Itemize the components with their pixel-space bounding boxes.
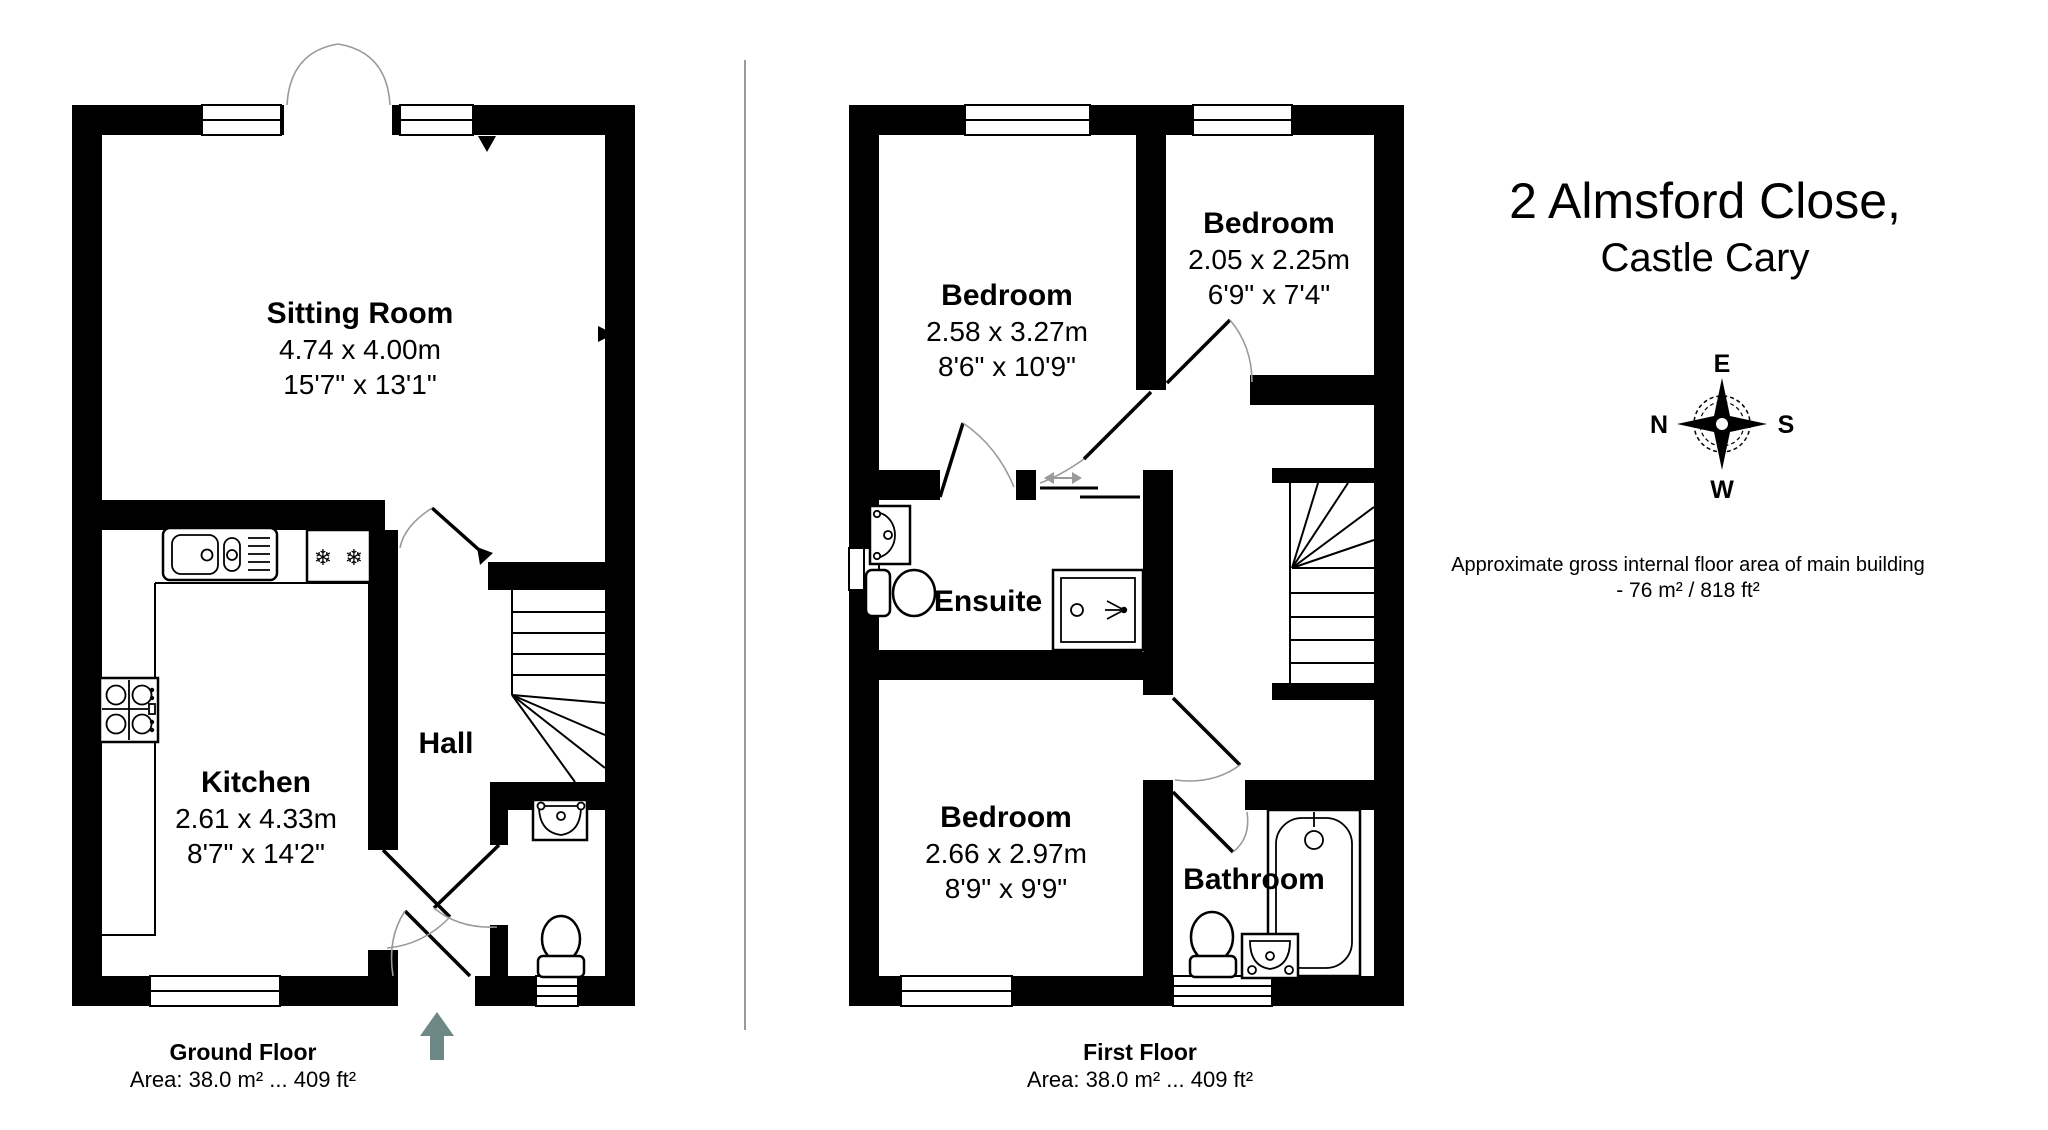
kitchen-counter <box>102 583 368 935</box>
room-dim-metric: 2.58 x 3.27m <box>926 314 1088 349</box>
hob-icon <box>100 678 158 742</box>
svg-text:❄: ❄ <box>345 546 363 571</box>
floor-footer-title: First Floor <box>1027 1038 1253 1066</box>
window <box>150 976 280 1006</box>
window <box>901 976 1012 1006</box>
room-label-bedroom-3: Bedroom 2.66 x 2.97m 8'9" x 9'9" <box>925 800 1087 906</box>
room-name: Bedroom <box>1188 206 1350 242</box>
floor-footer-area: Area: 38.0 m² ... 409 ft² <box>1027 1066 1253 1094</box>
window <box>1193 105 1292 135</box>
window <box>1173 976 1272 1006</box>
ensuite-basin-icon <box>870 506 910 564</box>
shower-icon <box>1053 570 1143 650</box>
floorplan-page: ❄ ❄ <box>0 0 2048 1130</box>
door-swing <box>434 845 499 927</box>
room-dim-imperial: 6'9" x 7'4" <box>1188 277 1350 312</box>
room-dim-metric: 2.05 x 2.25m <box>1188 242 1350 277</box>
room-label-bedroom-1: Bedroom 2.58 x 3.27m 8'6" x 10'9" <box>926 278 1088 384</box>
compass-top-label: E <box>1714 350 1731 378</box>
room-name: Bathroom <box>1183 862 1325 898</box>
room-label-bedroom-2: Bedroom 2.05 x 2.25m 6'9" x 7'4" <box>1188 206 1350 312</box>
room-name: Kitchen <box>175 765 337 801</box>
room-name: Bedroom <box>925 800 1087 836</box>
door-swing <box>383 850 450 948</box>
stairs <box>1290 483 1374 683</box>
kitchen-sink-icon <box>163 528 277 580</box>
floor-footer-title: Ground Floor <box>130 1038 356 1066</box>
ensuite-toilet-icon <box>866 570 935 616</box>
room-dim-imperial: 8'6" x 10'9" <box>926 349 1088 384</box>
wc-basin-icon <box>533 800 587 840</box>
page-title-line1: 2 Almsford Close, <box>1509 170 1901 232</box>
gross-area-note-line2: - 76 m² / 818 ft² <box>1451 578 1925 604</box>
window <box>202 105 281 135</box>
gross-area-note: Approximate gross internal floor area of… <box>1451 552 1925 604</box>
room-dim-imperial: 15'7" x 13'1" <box>267 367 454 402</box>
room-name: Bedroom <box>926 278 1088 314</box>
room-label-hall: Hall <box>418 726 473 762</box>
room-label-sitting-room: Sitting Room 4.74 x 4.00m 15'7" x 13'1" <box>267 296 454 402</box>
floor-footer-area: Area: 38.0 m² ... 409 ft² <box>130 1066 356 1094</box>
room-dim-metric: 2.66 x 2.97m <box>925 836 1087 871</box>
bathroom-basin-icon <box>1242 934 1298 978</box>
front-double-door <box>284 44 392 135</box>
room-dim-imperial: 8'9" x 9'9" <box>925 871 1087 906</box>
stairs <box>512 590 605 782</box>
page-title-line2: Castle Cary <box>1509 232 1901 284</box>
ground-floor-plan: ❄ ❄ <box>72 44 635 1060</box>
svg-text:❄: ❄ <box>314 546 332 571</box>
door-swing <box>1173 792 1248 852</box>
door-swing <box>1040 392 1151 483</box>
door-swing <box>392 911 476 1006</box>
room-label-kitchen: Kitchen 2.61 x 4.33m 8'7" x 14'2" <box>175 765 337 871</box>
window <box>400 105 473 135</box>
compass-rose: E N S W <box>1650 350 1794 504</box>
room-name: Ensuite <box>934 584 1042 620</box>
ground-floor-footer: Ground Floor Area: 38.0 m² ... 409 ft² <box>130 1038 356 1094</box>
entrance-arrow <box>420 1012 454 1060</box>
first-floor-footer: First Floor Area: 38.0 m² ... 409 ft² <box>1027 1038 1253 1094</box>
room-dim-imperial: 8'7" x 14'2" <box>175 836 337 871</box>
compass-right-label: S <box>1778 411 1795 439</box>
window <box>965 105 1090 135</box>
gross-area-note-line1: Approximate gross internal floor area of… <box>1451 552 1925 578</box>
room-dim-metric: 4.74 x 4.00m <box>267 332 454 367</box>
wc-toilet-icon <box>538 916 584 977</box>
room-label-bathroom: Bathroom <box>1183 862 1325 898</box>
door-swing <box>1173 698 1240 781</box>
room-name: Sitting Room <box>267 296 454 332</box>
room-label-ensuite: Ensuite <box>934 584 1042 620</box>
page-title: 2 Almsford Close, Castle Cary <box>1509 170 1901 284</box>
window <box>536 976 578 1006</box>
door-swing <box>940 423 1014 497</box>
bathroom-toilet-icon <box>1190 912 1236 977</box>
fridge-freezer-icon: ❄ ❄ <box>307 530 370 582</box>
compass-left-label: N <box>1650 411 1668 439</box>
door-swing <box>400 508 487 557</box>
room-dim-metric: 2.61 x 4.33m <box>175 801 337 836</box>
door-swing <box>1167 320 1252 383</box>
compass-bottom-label: W <box>1710 476 1734 504</box>
room-name: Hall <box>418 726 473 762</box>
